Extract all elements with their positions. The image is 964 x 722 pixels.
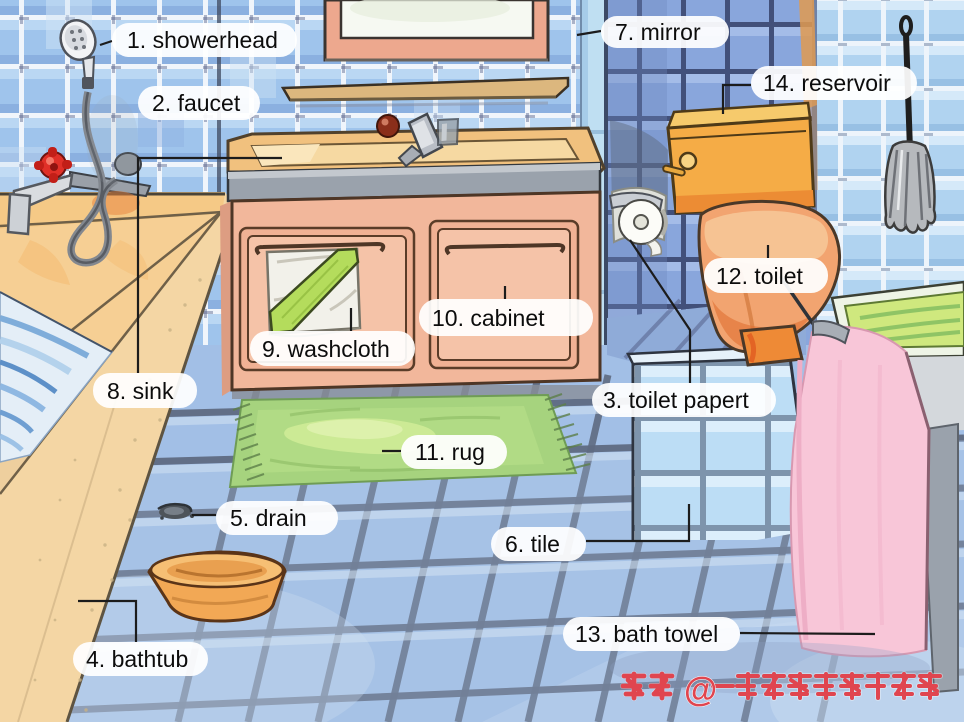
- svg-text:10. cabinet: 10. cabinet: [432, 305, 545, 331]
- svg-text:8. sink: 8. sink: [107, 378, 174, 404]
- svg-text:1. showerhead: 1. showerhead: [127, 27, 278, 53]
- svg-text:7. mirror: 7. mirror: [615, 19, 701, 45]
- svg-text:6. tile: 6. tile: [505, 531, 560, 557]
- svg-text:4. bathtub: 4. bathtub: [86, 646, 188, 672]
- svg-text:11. rug: 11. rug: [415, 439, 485, 465]
- svg-text:2. faucet: 2. faucet: [152, 90, 241, 116]
- svg-text:12. toilet: 12. toilet: [716, 263, 804, 289]
- svg-text:14. reservoir: 14. reservoir: [763, 70, 891, 96]
- svg-text:3. toilet papert: 3. toilet papert: [603, 387, 749, 413]
- svg-text:9. washcloth: 9. washcloth: [262, 336, 390, 362]
- svg-text:5. drain: 5. drain: [230, 505, 307, 531]
- svg-text:@: @: [684, 671, 717, 709]
- svg-text:13. bath towel: 13. bath towel: [575, 621, 718, 647]
